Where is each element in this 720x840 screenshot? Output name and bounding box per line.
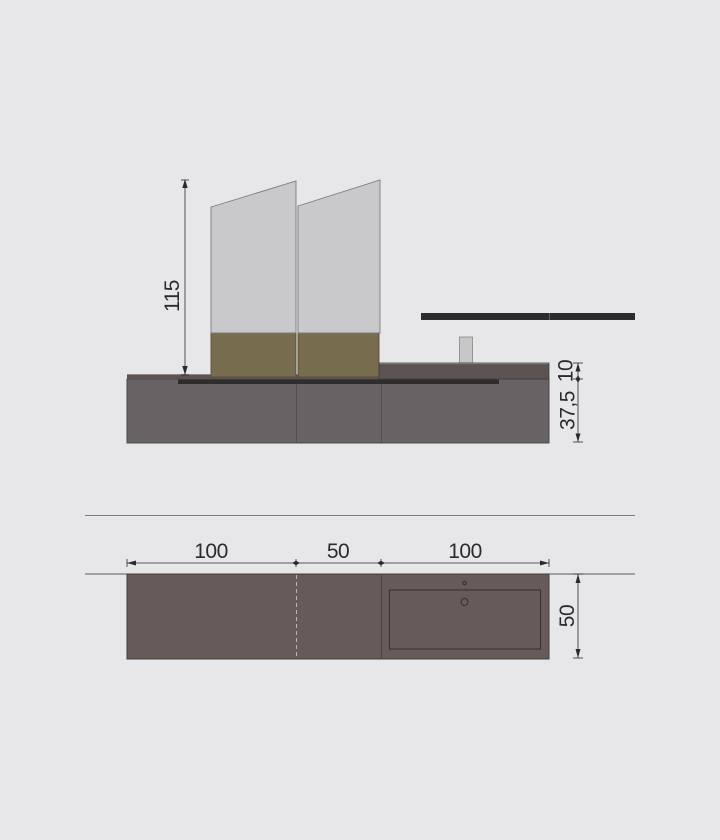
dim-label-cabinet-height: 37,5: [557, 391, 580, 430]
dim-label-section-right: 100: [448, 540, 482, 563]
technical-drawing-page: 115 10 37,5: [0, 0, 720, 840]
arrow-up-icon: [576, 574, 581, 583]
dimension-depth: 50: [556, 574, 583, 658]
dimension-right-stack: 10 37,5: [555, 360, 584, 442]
wall-shelf-bar: [421, 313, 635, 320]
plan-view: 100 50 100 50: [85, 540, 635, 659]
elevation-view: 115 10 37,5: [127, 179, 635, 443]
arrow-right-icon: [540, 561, 549, 566]
technical-drawing-canvas: 115 10 37,5: [0, 0, 720, 840]
dim-label-section-middle: 50: [327, 540, 349, 563]
dim-label-depth: 50: [556, 605, 579, 627]
dim-junction-icon: [377, 561, 385, 566]
mirror-base-cabinet-left: [211, 333, 296, 377]
mirror-panel-left: [211, 181, 296, 333]
arrow-down-icon: [576, 649, 581, 658]
dimension-width-chain: 100 50 100: [127, 540, 549, 567]
dim-label-countertop-thickness: 10: [555, 360, 578, 382]
mirror-panel-right: [298, 180, 380, 333]
plan-countertop: [127, 574, 549, 659]
faucet-spout: [460, 337, 473, 363]
dim-junction-icon: [292, 561, 300, 566]
dim-label-section-left: 100: [194, 540, 228, 563]
arrow-down-icon: [182, 366, 187, 375]
dimension-total-height: 115: [161, 179, 189, 375]
arrow-left-icon: [127, 561, 136, 566]
countertop-right-raised: [379, 363, 549, 379]
handle-groove: [178, 380, 499, 385]
dim-label-total-height: 115: [161, 280, 184, 312]
vanity-cabinet-body: [127, 379, 549, 443]
arrow-down-icon: [576, 434, 581, 443]
mirror-base-cabinet-right: [298, 333, 379, 377]
